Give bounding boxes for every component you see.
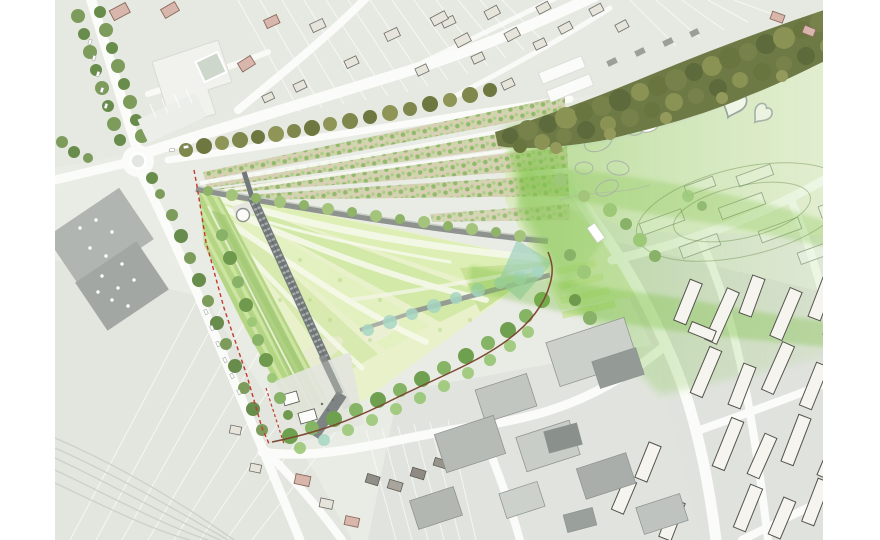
roundabout xyxy=(122,145,154,177)
paper-margin-left xyxy=(0,0,55,540)
site-plan-image xyxy=(0,0,880,540)
site-plan-canvas xyxy=(0,0,880,540)
paper-margin-right xyxy=(823,0,880,540)
garden-pavilion xyxy=(237,209,250,222)
